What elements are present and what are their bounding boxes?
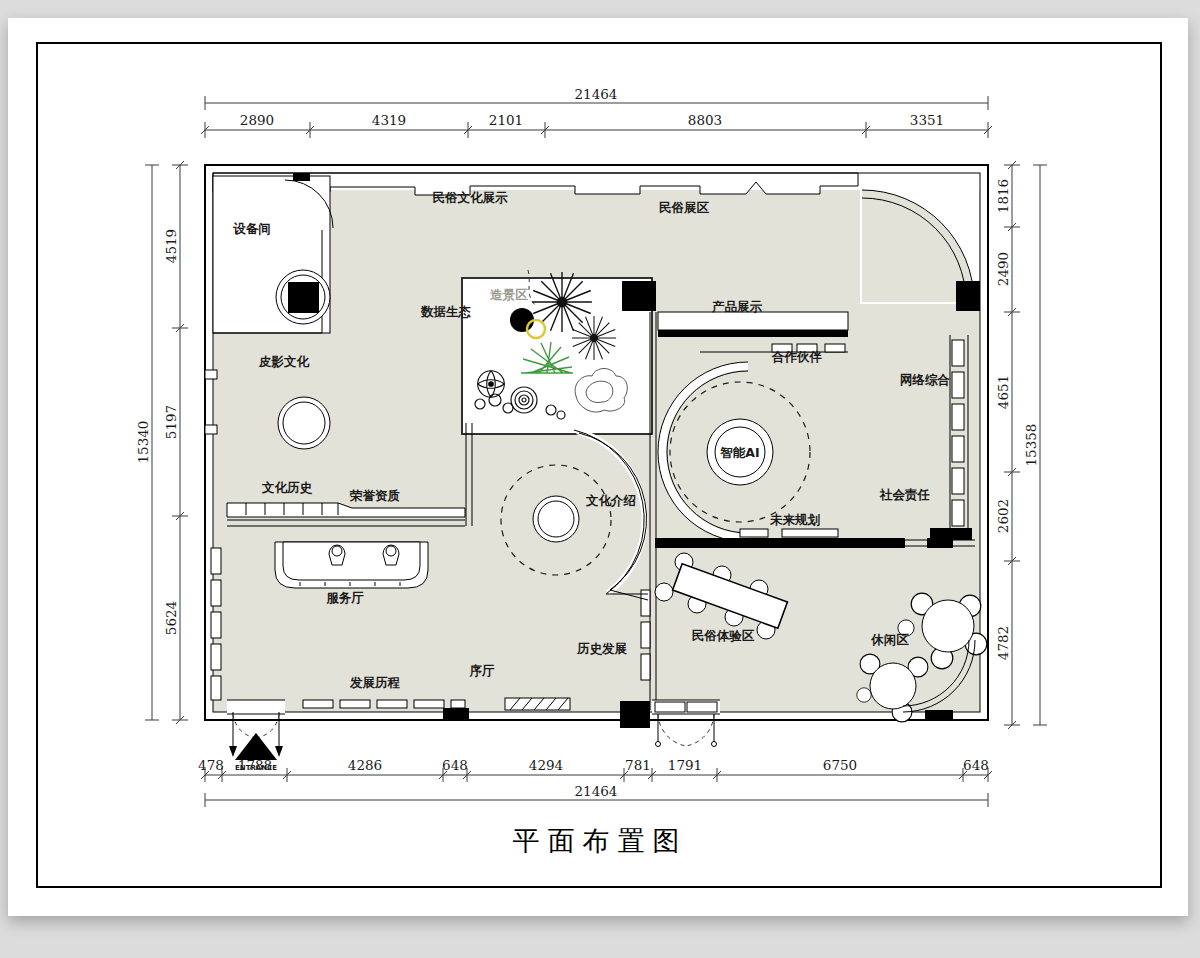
dim-right-seg: 4651 <box>995 375 1011 409</box>
left-display-niches <box>211 548 221 700</box>
dim-bottom-seg: 4294 <box>529 757 563 773</box>
dim-bottom-seg: 648 <box>442 757 468 773</box>
reception-desk <box>275 542 428 588</box>
dim-bottom-total: 21464 <box>575 783 618 799</box>
room-label-partners: 合作伙伴 <box>771 349 823 364</box>
dim-bottom-seg: 4286 <box>348 757 382 773</box>
room-label-development-history: 发展历程 <box>349 675 401 690</box>
dim-top-seg: 2890 <box>240 112 274 128</box>
room-label-folk-experience: 民俗体验区 <box>692 628 755 643</box>
dimension-right: 1816 2490 4651 2602 4782 15358 <box>995 161 1047 729</box>
dim-left-total: 15340 <box>135 421 151 464</box>
room-label-service-hall: 服务厅 <box>325 590 364 605</box>
entry-mat <box>505 698 570 710</box>
dim-top-total: 21464 <box>575 86 618 102</box>
room-label-future-plan: 未来规划 <box>769 512 821 527</box>
dimension-bottom: 478 1788 4286 648 4294 781 1791 6750 648… <box>198 757 992 807</box>
dim-right-seg: 2490 <box>995 252 1011 286</box>
dim-left-seg: 5197 <box>163 405 179 439</box>
dim-left-seg: 5624 <box>163 601 179 635</box>
dim-right-seg: 4782 <box>995 626 1011 660</box>
equipment-room <box>213 173 333 333</box>
entrance-label: ENTRANCE <box>235 764 277 772</box>
room-label-product-display: 产品展示 <box>711 299 763 314</box>
room-label-social-responsibility: 社会责任 <box>879 487 931 502</box>
dim-bottom-seg: 781 <box>625 757 651 773</box>
dim-right-seg: 1816 <box>995 179 1011 213</box>
dim-top-seg: 3351 <box>910 112 944 128</box>
dim-right-seg: 2602 <box>995 499 1011 533</box>
room-label-prologue-hall: 序厅 <box>469 663 496 678</box>
dim-bottom-seg: 648 <box>963 757 989 773</box>
room-label-honors: 荣誉资质 <box>349 488 401 503</box>
drawing-title: 平面布置图 <box>513 825 688 856</box>
dim-top-seg: 2101 <box>489 112 523 128</box>
dim-bottom-seg: 6750 <box>823 757 857 773</box>
room-label-data-ecology: 数据生态 <box>420 304 472 319</box>
room-label-shadow-puppet: 皮影文化 <box>258 354 310 369</box>
room-label-culture-intro: 文化介绍 <box>585 493 636 508</box>
dim-top-seg: 4319 <box>372 112 406 128</box>
room-label-ai: 智能AI <box>719 445 759 460</box>
dim-bottom-seg: 1791 <box>668 757 702 773</box>
dim-bottom-seg: 478 <box>198 757 224 773</box>
entrance-arrow-icon <box>235 733 277 760</box>
room-label-leisure: 休闲区 <box>870 632 909 647</box>
dim-top-seg: 8803 <box>688 112 722 128</box>
room-label-culture-history: 文化历史 <box>261 480 313 495</box>
room-label-landscape: 造景区 <box>489 287 528 302</box>
floor-plan-drawing: 21464 2890 4319 2101 8803 3351 478 1788 … <box>0 0 1200 958</box>
room-label-folk-culture-display: 民俗文化展示 <box>433 190 509 205</box>
dimension-top: 21464 2890 4319 2101 8803 3351 <box>201 86 992 138</box>
dim-right-total: 15358 <box>1023 424 1039 467</box>
room-label-equipment: 设备间 <box>232 221 271 236</box>
room-label-network: 网络综合 <box>900 372 951 387</box>
dim-left-seg: 4519 <box>163 229 179 263</box>
dimension-left: 15340 4519 5197 5624 <box>135 161 188 724</box>
room-label-history-development: 历史发展 <box>576 641 628 656</box>
room-label-folk-zone: 民俗展区 <box>659 200 710 215</box>
entrance-secondary[interactable] <box>652 700 720 747</box>
